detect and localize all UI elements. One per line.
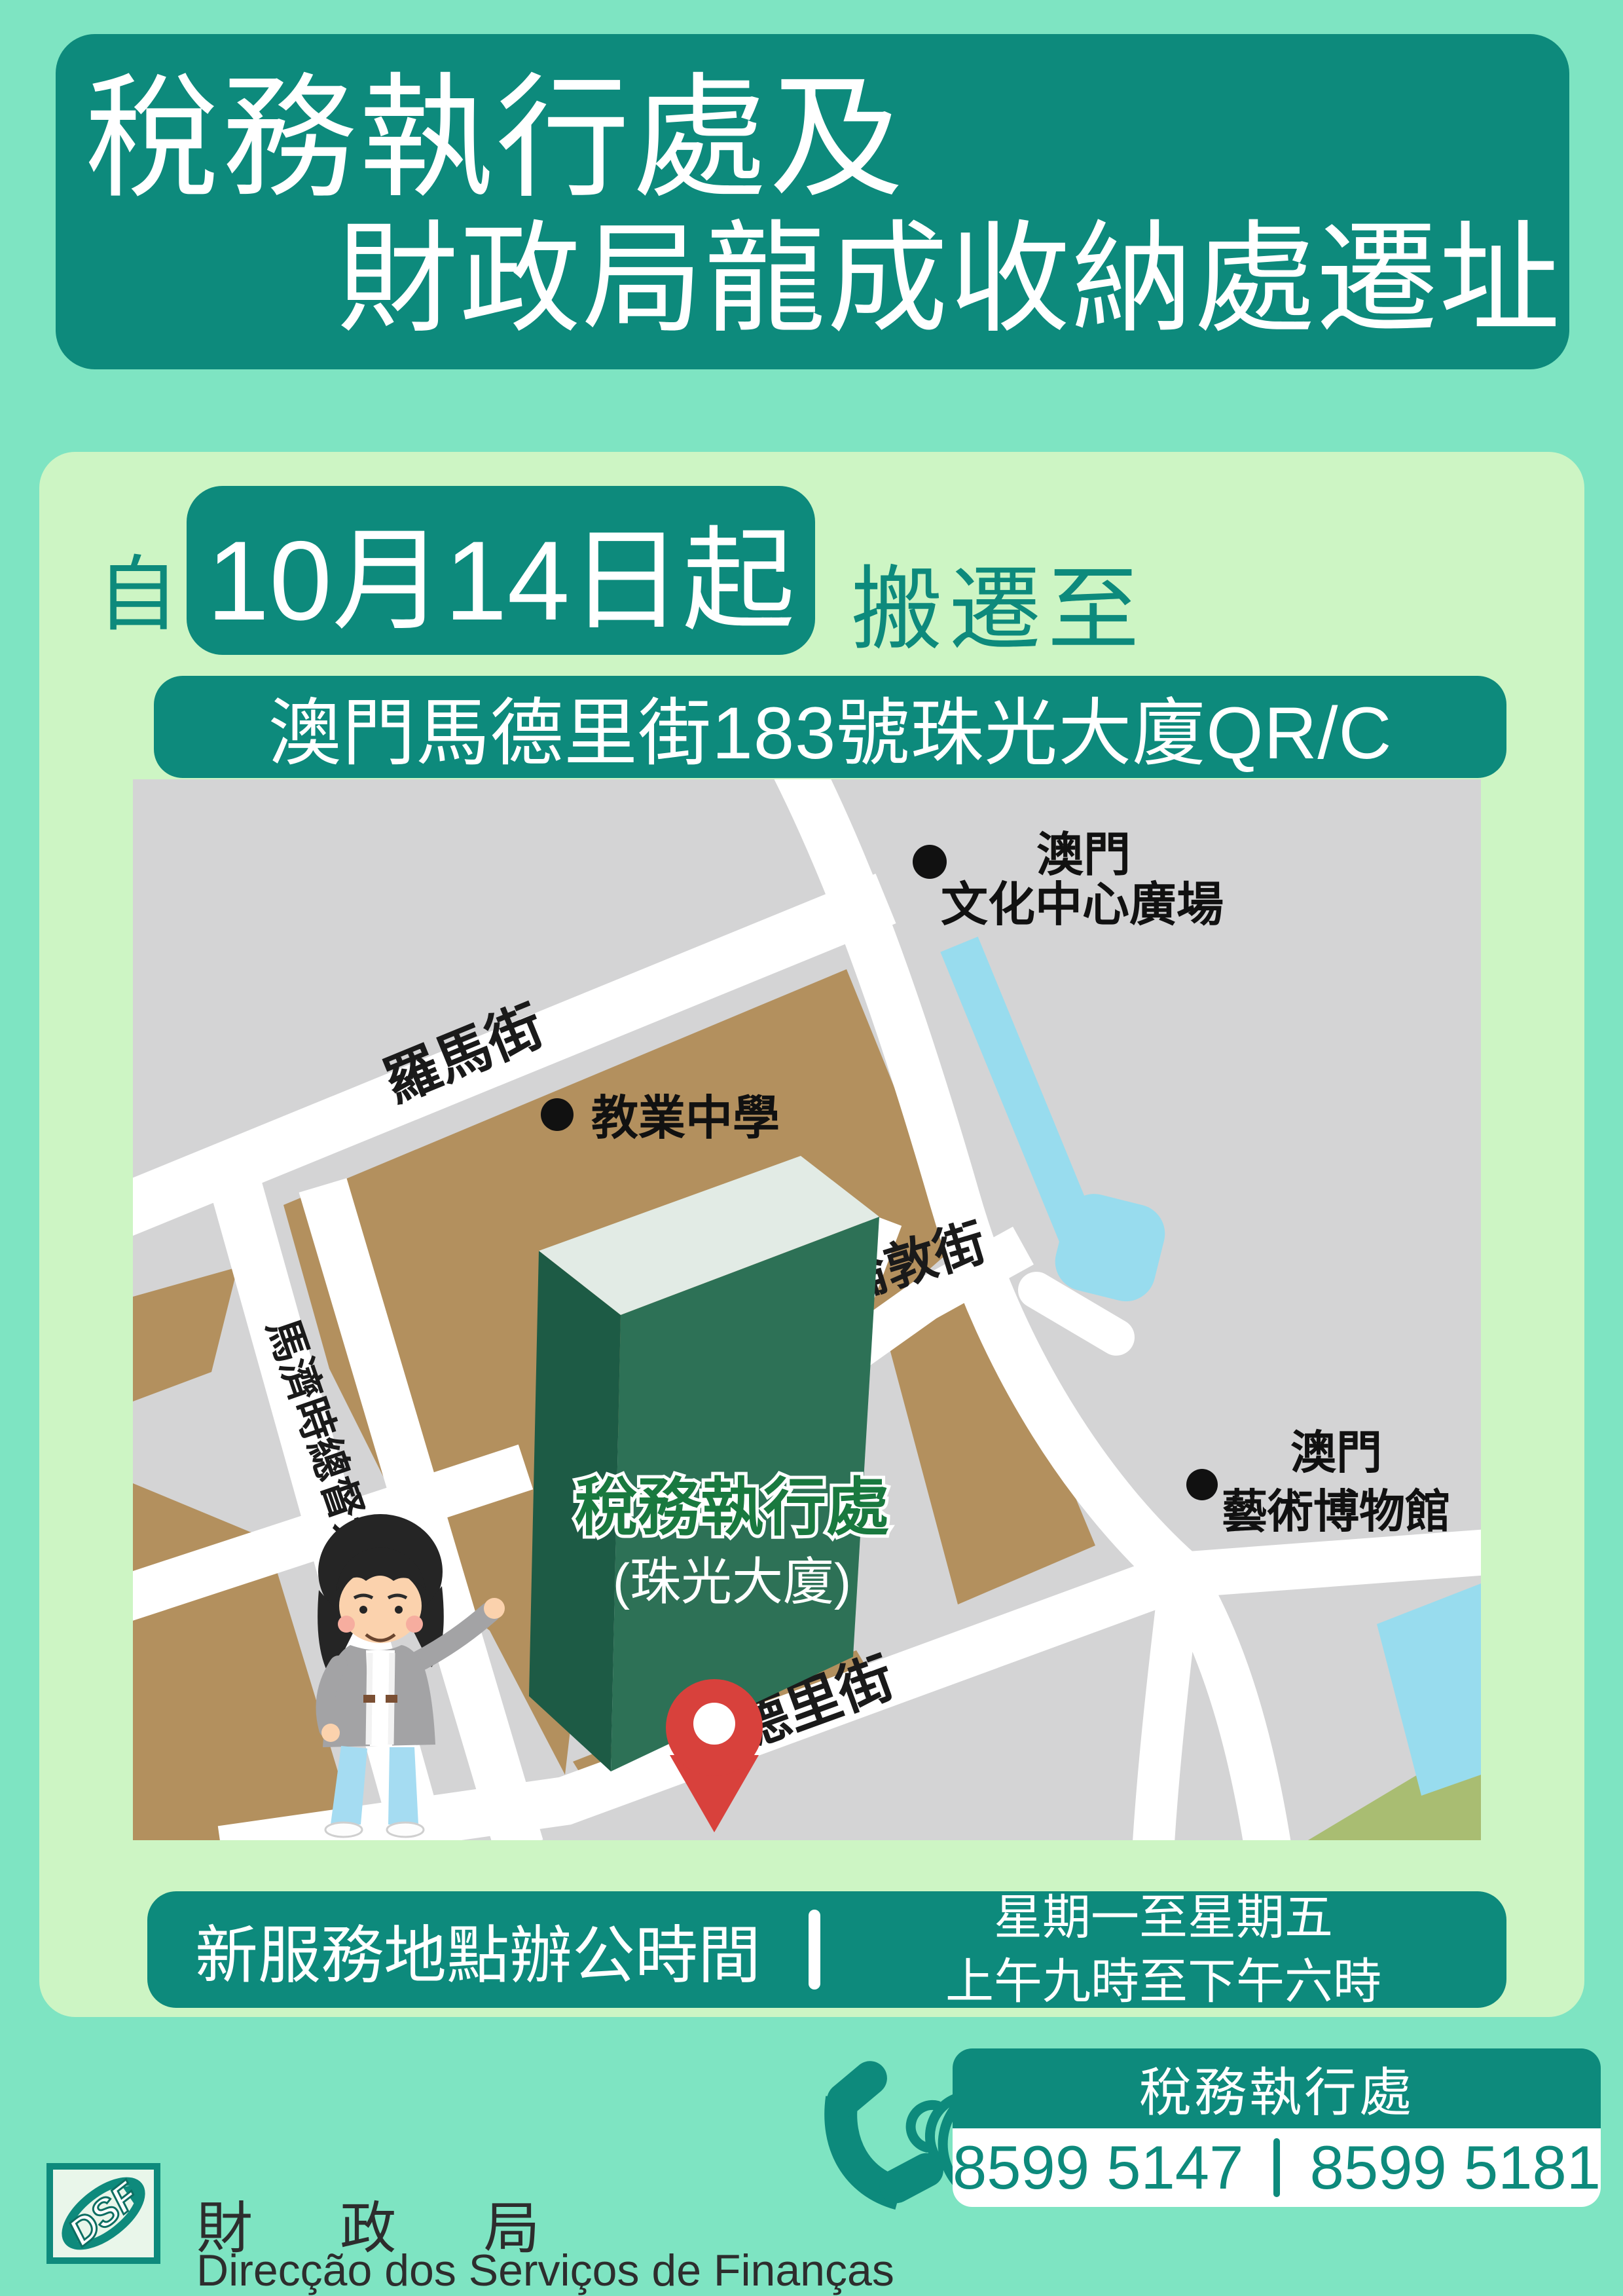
organization-name-portuguese: Direcção dos Serviços de Finanças [196,2245,894,2296]
office-hours-days: 星期一至星期五 [820,1885,1506,1950]
new-address-text: 澳門馬德里街183號珠光大廈QR/C [268,674,1393,780]
location-map: 羅馬街 馬濟時總督大馬路 倫敦街 馬德里街 澳門 文化中心廣場 教業中學 澳門 … [133,779,1481,1840]
header-banner: 稅務執行處及 財政局龍成收納處遷址 [56,34,1569,369]
move-suffix-text: 搬遷至 [851,536,1146,668]
header-title-line1: 稅務執行處及 [85,68,906,209]
landmark-dot [913,845,947,879]
contact-phones: 8599 5147 8599 5181 [953,2128,1601,2207]
office-hours-value: 星期一至星期五 上午九時至下午六時 [820,1885,1506,2013]
dsf-logo: DSF [46,2162,164,2270]
office-hours-time: 上午九時至下午六時 [820,1950,1506,2014]
building-alias-label: (珠光大廈) [613,1553,851,1610]
phone-number-2: 8599 5181 [1310,2132,1601,2203]
landmark-dot [541,1098,574,1131]
office-hours-banner: 新服務地點辦公時間 星期一至星期五 上午九時至下午六時 [147,1891,1506,2008]
landmark-label: 藝術博物館 [1222,1486,1451,1537]
move-date-badge: 10月14日起 [187,486,815,655]
phone-number-1: 8599 5147 [953,2132,1243,2203]
landmark-label: 澳門 [1290,1427,1382,1478]
landmark-dot [1186,1469,1218,1500]
building-name-label: 稅務執行處 [575,1473,889,1543]
header-title-line2: 財政局龍成收納處遷址 [337,216,1561,343]
landmark-label: 教業中學 [591,1092,780,1145]
landmark-label: 澳門 [1036,829,1131,881]
contact-department-text: 稅務執行處 [1139,2050,1414,2126]
contact-department: 稅務執行處 [953,2048,1601,2128]
office-hours-label: 新服務地點辦公時間 [147,1904,809,1995]
map-canvas: 羅馬街 馬濟時總督大馬路 倫敦街 馬德里街 澳門 文化中心廣場 教業中學 澳門 … [133,779,1481,1840]
move-prefix-text: 自 [97,528,179,646]
move-date-text: 10月14日起 [207,489,795,652]
phone-divider [1273,2138,1279,2197]
contact-card: 稅務執行處 8599 5147 8599 5181 [953,2048,1601,2207]
landmark-label: 文化中心廣場 [941,879,1224,931]
vertical-divider [809,1910,820,1990]
new-address-banner: 澳門馬德里街183號珠光大廈QR/C [154,676,1506,778]
